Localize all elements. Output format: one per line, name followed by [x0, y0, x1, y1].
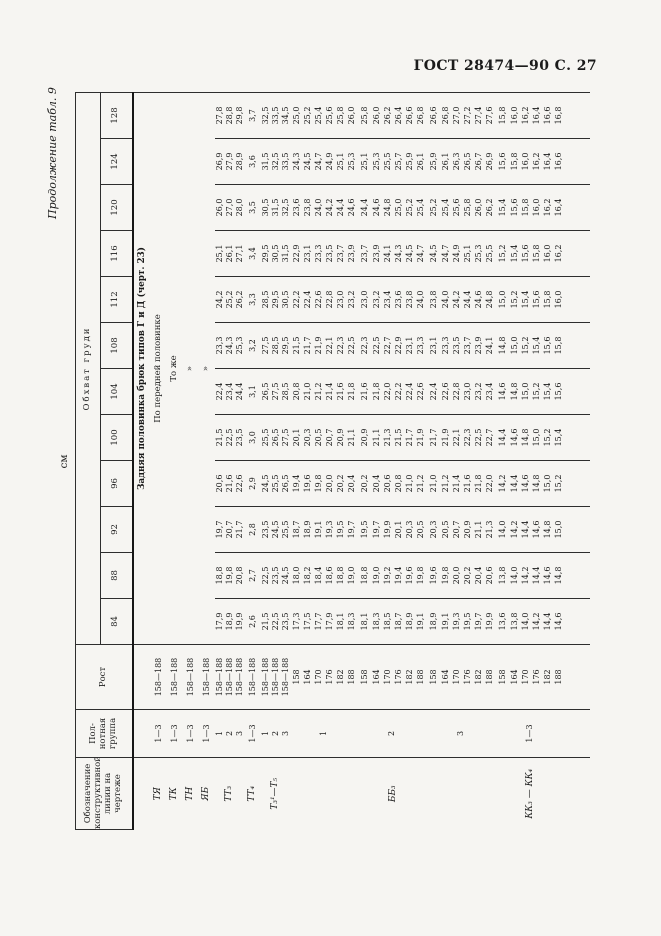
table-cell: 158: [291, 645, 303, 710]
value-cell: 14,4: [521, 507, 532, 553]
value-cell: 21,3: [383, 415, 394, 461]
value-cell: 26,0: [347, 93, 358, 139]
value-cell: 14,2: [532, 599, 543, 645]
value-cell: 25,5: [383, 139, 394, 185]
header-size-108: 108: [101, 323, 133, 369]
value-cell: 19,4: [291, 461, 303, 507]
value-cell: 14,4: [496, 415, 510, 461]
value-cell: 22,0: [485, 461, 496, 507]
value-cell: 33,5: [281, 139, 291, 185]
value-cell: 18,8: [215, 553, 225, 599]
header-height: Рост: [76, 645, 133, 710]
table-cell: [565, 553, 590, 599]
value-cell: 21,6: [336, 369, 347, 415]
value-cell: 23,2: [474, 369, 485, 415]
value-cell: 26,9: [215, 139, 225, 185]
designation-cell: КК₃ — КК₄: [496, 758, 565, 830]
table-cell: 158—188: [215, 645, 225, 710]
value-cell: 25,9: [427, 139, 441, 185]
table-cell: 3: [235, 710, 245, 758]
table-cell: 164: [510, 645, 521, 710]
table-cell: 3: [281, 710, 291, 758]
value-cell: 22,6: [314, 277, 325, 323]
value-cell: 26,1: [225, 231, 235, 277]
value-cell: 22,6: [441, 369, 452, 415]
table-cell: 2: [358, 710, 427, 758]
value-cell: 20,2: [336, 461, 347, 507]
value-cell: 22,3: [463, 415, 474, 461]
table-cell: 158—188: [151, 645, 167, 710]
table-cell: »: [199, 93, 215, 645]
table-row: 315818,919,620,321,021,722,423,123,824,5…: [427, 93, 441, 830]
value-cell: 32,5: [271, 139, 281, 185]
value-cell: 27,2: [463, 93, 474, 139]
header-fullness-group: Пол-нотная группа: [76, 710, 133, 758]
table-row: 3158—18823,524,525,526,527,528,529,530,5…: [281, 93, 291, 830]
table-cell: [565, 758, 590, 830]
value-cell: 21,3: [485, 507, 496, 553]
value-cell: 16,4: [543, 139, 554, 185]
value-cell: 25,2: [405, 185, 416, 231]
table-row: 2158—18818,919,820,721,622,523,424,325,2…: [225, 93, 235, 830]
value-cell: 15,4: [521, 277, 532, 323]
table-cell: 170: [452, 645, 463, 710]
value-cell: 26,7: [474, 139, 485, 185]
value-cell: 26,2: [485, 185, 496, 231]
value-cell: 18,7: [291, 507, 303, 553]
value-cell: 23,2: [372, 277, 383, 323]
value-cell: 14,4: [510, 461, 521, 507]
value-cell: 20,4: [347, 461, 358, 507]
value-cell: 22,4: [405, 369, 416, 415]
table-cell: 158—188: [167, 645, 183, 710]
value-cell: 25,1: [336, 139, 347, 185]
value-cell: 24,7: [441, 231, 452, 277]
value-cell: 24,6: [347, 185, 358, 231]
value-cell: 17,9: [325, 599, 336, 645]
value-cell: 25,4: [314, 93, 325, 139]
value-cell: 19,5: [336, 507, 347, 553]
value-cell: 19,5: [358, 507, 372, 553]
value-cell: 24,7: [314, 139, 325, 185]
value-cell: 24,5: [427, 231, 441, 277]
value-cell: 19,9: [485, 599, 496, 645]
value-cell: 20,0: [452, 553, 463, 599]
table-cell: 176: [394, 645, 405, 710]
header-size-100: 100: [101, 415, 133, 461]
value-cell: 25,6: [325, 93, 336, 139]
value-cell: 16,0: [543, 231, 554, 277]
value-cell: 19,4: [394, 553, 405, 599]
value-cell: 24,8: [383, 185, 394, 231]
value-cell: 26,9: [485, 139, 496, 185]
value-cell: 14,8: [543, 507, 554, 553]
value-cell: 20,4: [372, 461, 383, 507]
value-cell: 30,5: [271, 231, 281, 277]
value-cell: 15,2: [521, 323, 532, 369]
value-cell: 3,7: [245, 93, 261, 139]
value-cell: 16,0: [554, 277, 565, 323]
value-cell: 3,2: [245, 323, 261, 369]
value-cell: 25,8: [336, 93, 347, 139]
table-cell: [565, 323, 590, 369]
garment-measurement-table: Обозначение конструктивной линии на черт…: [75, 92, 590, 830]
value-cell: 20,1: [291, 415, 303, 461]
value-cell: 20,1: [394, 507, 405, 553]
value-cell: 17,9: [215, 599, 225, 645]
value-cell: 27,6: [485, 93, 496, 139]
value-cell: 23,7: [358, 231, 372, 277]
value-cell: 3,0: [245, 415, 261, 461]
value-cell: 17,7: [314, 599, 325, 645]
table-cell: 182: [336, 645, 347, 710]
table-cell: 1—3: [199, 710, 215, 758]
value-cell: 19,8: [441, 553, 452, 599]
value-cell: 34,5: [281, 93, 291, 139]
value-cell: 26,0: [372, 93, 383, 139]
value-cell: 18,9: [303, 507, 314, 553]
value-cell: 32,5: [261, 93, 271, 139]
value-cell: 27,0: [452, 93, 463, 139]
value-cell: 22,8: [325, 277, 336, 323]
header-size-84: 84: [101, 599, 133, 645]
value-cell: 20,2: [463, 553, 474, 599]
value-cell: 16,0: [521, 139, 532, 185]
value-cell: 21,6: [358, 369, 372, 415]
value-cell: 23,5: [271, 553, 281, 599]
value-cell: 26,4: [394, 93, 405, 139]
value-cell: 27,5: [281, 415, 291, 461]
value-cell: 23,6: [394, 277, 405, 323]
table-cell: [565, 185, 590, 231]
value-cell: 20,2: [358, 461, 372, 507]
value-cell: 22,5: [261, 553, 271, 599]
table-cell: 1—3: [183, 710, 199, 758]
value-cell: 20,8: [291, 369, 303, 415]
table-cell: 1—3: [167, 710, 183, 758]
value-cell: 14,6: [510, 415, 521, 461]
value-cell: 26,5: [281, 461, 291, 507]
table-cell: 158: [496, 645, 510, 710]
value-cell: 28,5: [281, 369, 291, 415]
value-cell: 14,4: [543, 599, 554, 645]
table-cell: 158—188: [261, 645, 271, 710]
table-body: Задняя половинка брюк типов Г и Д (черт.…: [133, 93, 590, 830]
value-cell: 25,1: [358, 139, 372, 185]
table-cell: 176: [325, 645, 336, 710]
value-cell: 27,5: [271, 369, 281, 415]
value-cell: 25,5: [271, 461, 281, 507]
table-cell: 170: [521, 645, 532, 710]
value-cell: 19,8: [314, 461, 325, 507]
value-cell: 14,0: [510, 553, 521, 599]
table-cell: 158—188: [183, 645, 199, 710]
value-cell: 23,6: [291, 185, 303, 231]
value-cell: 2,8: [245, 507, 261, 553]
value-cell: 21,2: [314, 369, 325, 415]
value-cell: 18,9: [427, 599, 441, 645]
value-cell: 22,4: [215, 369, 225, 415]
value-cell: 15,2: [532, 369, 543, 415]
value-cell: 15,6: [496, 139, 510, 185]
value-cell: 20,3: [427, 507, 441, 553]
value-cell: 31,5: [281, 231, 291, 277]
table-cell: 158—188: [245, 645, 261, 710]
value-cell: 29,5: [261, 231, 271, 277]
value-cell: 25,3: [372, 139, 383, 185]
table-cell: 158: [358, 645, 372, 710]
table-cell: 2: [225, 710, 235, 758]
value-cell: 22,5: [347, 323, 358, 369]
table-cell: 2: [271, 710, 281, 758]
value-cell: 16,4: [554, 185, 565, 231]
value-cell: 3,1: [245, 369, 261, 415]
value-cell: 16,6: [543, 93, 554, 139]
value-cell: 31,5: [261, 139, 271, 185]
value-cell: 25,7: [394, 139, 405, 185]
value-cell: 21,7: [303, 323, 314, 369]
value-cell: 21,4: [452, 461, 463, 507]
value-cell: 25,2: [303, 93, 314, 139]
value-cell: 15,2: [496, 231, 510, 277]
header-size-128: 128: [101, 93, 133, 139]
rotated-measurement-table: Обозначение конструктивной линии на черт…: [75, 93, 590, 830]
value-cell: 25,4: [441, 185, 452, 231]
value-cell: 23,3: [441, 323, 452, 369]
value-cell: 20,6: [215, 461, 225, 507]
header-size-88: 88: [101, 553, 133, 599]
value-cell: 28,8: [225, 93, 235, 139]
value-cell: 22,2: [394, 369, 405, 415]
value-cell: 16,8: [554, 93, 565, 139]
value-cell: 20,5: [314, 415, 325, 461]
table-cell: [565, 507, 590, 553]
table-cell: [565, 599, 590, 645]
table-cell: [565, 461, 590, 507]
value-cell: 23,5: [281, 599, 291, 645]
value-cell: 18,4: [314, 553, 325, 599]
value-cell: 28,5: [261, 277, 271, 323]
value-cell: 20,7: [325, 415, 336, 461]
table-row: [565, 93, 590, 830]
value-cell: 31,5: [271, 185, 281, 231]
value-cell: 19,9: [235, 599, 245, 645]
header-chest-girth: Обхват груди: [76, 93, 101, 645]
designation-cell: ББ₃: [291, 758, 496, 830]
table-cell: [565, 139, 590, 185]
value-cell: 24,1: [485, 323, 496, 369]
value-cell: 21,8: [474, 461, 485, 507]
designation-cell: Т₃¹—Т₅: [261, 758, 291, 830]
value-cell: 15,0: [496, 277, 510, 323]
value-cell: 18,9: [405, 599, 416, 645]
table-cell: [133, 758, 151, 830]
value-cell: 15,8: [521, 185, 532, 231]
value-cell: 15,6: [521, 231, 532, 277]
value-cell: 23,4: [225, 369, 235, 415]
value-cell: 25,9: [405, 139, 416, 185]
value-cell: 19,5: [463, 599, 474, 645]
value-cell: 21,9: [416, 415, 427, 461]
table-row: ЯБ1—3158—188»: [199, 93, 215, 830]
designation-cell: ТТ₃: [215, 758, 245, 830]
value-cell: 19,3: [325, 507, 336, 553]
value-cell: 23,5: [452, 323, 463, 369]
value-cell: 23,0: [358, 277, 372, 323]
value-cell: 24,3: [394, 231, 405, 277]
value-cell: 24,0: [416, 277, 427, 323]
value-cell: 18,6: [325, 553, 336, 599]
value-cell: 23,4: [485, 369, 496, 415]
value-cell: 20,0: [325, 461, 336, 507]
value-cell: 19,7: [215, 507, 225, 553]
value-cell: 23,3: [215, 323, 225, 369]
value-cell: 13,8: [496, 553, 510, 599]
value-cell: 25,8: [358, 93, 372, 139]
value-cell: 30,5: [261, 185, 271, 231]
value-cell: 15,0: [543, 461, 554, 507]
value-cell: 3,5: [245, 185, 261, 231]
value-cell: 19,0: [347, 553, 358, 599]
value-cell: 24,4: [358, 185, 372, 231]
unit-label-cm: см: [58, 93, 70, 830]
value-cell: 24,7: [416, 231, 427, 277]
table-cell: 182: [474, 645, 485, 710]
table-row: Задняя половинка брюк типов Г и Д (черт.…: [133, 93, 151, 830]
value-cell: 27,9: [225, 139, 235, 185]
value-cell: 20,8: [394, 461, 405, 507]
table-cell: 1: [261, 710, 271, 758]
value-cell: 14,6: [521, 461, 532, 507]
value-cell: 20,3: [303, 415, 314, 461]
table-cell: 158—188: [281, 645, 291, 710]
table-cell: [565, 231, 590, 277]
value-cell: 23,5: [261, 507, 271, 553]
scanned-gost-page: { "page": { "gost_header": "ГОСТ 28474—9…: [0, 0, 661, 936]
value-cell: 20,5: [441, 507, 452, 553]
value-cell: 22,1: [325, 323, 336, 369]
value-cell: 25,1: [215, 231, 225, 277]
value-cell: 25,2: [427, 185, 441, 231]
value-cell: 24,6: [372, 185, 383, 231]
value-cell: 21,2: [441, 461, 452, 507]
value-cell: 3,4: [245, 231, 261, 277]
value-cell: 15,4: [543, 369, 554, 415]
table-row: ББ₃115817,318,018,719,420,120,821,522,22…: [291, 93, 303, 830]
table-cell: [565, 277, 590, 323]
value-cell: 23,0: [336, 277, 347, 323]
value-cell: 13,8: [510, 599, 521, 645]
value-cell: 19,8: [416, 553, 427, 599]
table-cell: 188: [485, 645, 496, 710]
value-cell: 17,3: [291, 599, 303, 645]
value-cell: 2,9: [245, 461, 261, 507]
value-cell: 26,5: [271, 415, 281, 461]
value-cell: 15,2: [543, 415, 554, 461]
value-cell: 15,8: [510, 139, 521, 185]
table-cell: 158—188: [235, 645, 245, 710]
value-cell: 23,7: [336, 231, 347, 277]
table-cell: [133, 645, 151, 710]
value-cell: 23,8: [405, 277, 416, 323]
value-cell: 15,8: [532, 231, 543, 277]
value-cell: 22,9: [394, 323, 405, 369]
value-cell: 27,1: [235, 231, 245, 277]
value-cell: 25,8: [463, 185, 474, 231]
value-cell: 25,6: [452, 185, 463, 231]
value-cell: 19,0: [372, 553, 383, 599]
value-cell: 20,8: [235, 553, 245, 599]
table-row: 3158—18819,920,821,722,623,524,425,326,2…: [235, 93, 245, 830]
value-cell: 30,5: [281, 277, 291, 323]
value-cell: 14,6: [554, 599, 565, 645]
value-cell: 19,7: [347, 507, 358, 553]
value-cell: 20,9: [358, 415, 372, 461]
value-cell: 15,4: [510, 231, 521, 277]
value-cell: 24,0: [314, 185, 325, 231]
value-cell: 15,6: [532, 277, 543, 323]
value-cell: 29,5: [281, 323, 291, 369]
value-cell: 21,5: [394, 415, 405, 461]
value-cell: 15,6: [510, 185, 521, 231]
value-cell: 27,4: [474, 93, 485, 139]
value-cell: 18,1: [358, 599, 372, 645]
value-cell: 15,8: [554, 323, 565, 369]
value-cell: 21,1: [372, 415, 383, 461]
value-cell: 23,8: [427, 277, 441, 323]
value-cell: 2,6: [245, 599, 261, 645]
value-cell: 19,1: [441, 599, 452, 645]
value-cell: 15,0: [521, 369, 532, 415]
table-cell: 158: [427, 645, 441, 710]
value-cell: 14,6: [496, 369, 510, 415]
value-cell: 21,9: [441, 415, 452, 461]
value-cell: 22,8: [452, 369, 463, 415]
value-cell: 23,9: [347, 231, 358, 277]
value-cell: 24,5: [281, 553, 291, 599]
value-cell: 15,4: [554, 415, 565, 461]
value-cell: 23,3: [416, 323, 427, 369]
table-cell: [565, 93, 590, 139]
value-cell: 21,1: [474, 507, 485, 553]
table-cell: [133, 710, 151, 758]
value-cell: 23,1: [303, 231, 314, 277]
value-cell: 16,6: [554, 139, 565, 185]
value-cell: 24,2: [452, 277, 463, 323]
value-cell: 22,9: [291, 231, 303, 277]
value-cell: 26,0: [215, 185, 225, 231]
value-cell: 14,2: [510, 507, 521, 553]
value-cell: 14,4: [532, 553, 543, 599]
value-cell: 15,6: [543, 323, 554, 369]
value-cell: 18,8: [358, 553, 372, 599]
value-cell: 13,6: [496, 599, 510, 645]
value-cell: 15,4: [496, 185, 510, 231]
value-cell: 14,6: [532, 507, 543, 553]
value-cell: 14,8: [521, 415, 532, 461]
value-cell: 15,8: [496, 93, 510, 139]
table-cell: 164: [303, 645, 314, 710]
page-header-gost-number: ГОСТ 28474—90 С. 27: [414, 58, 597, 74]
value-cell: 21,5: [291, 323, 303, 369]
value-cell: 22,4: [427, 369, 441, 415]
value-cell: 17,5: [303, 599, 314, 645]
table-row: ТТ₃1158—18817,918,819,720,621,522,423,32…: [215, 93, 225, 830]
value-cell: 26,2: [383, 93, 394, 139]
table-cell: 1—3: [496, 710, 565, 758]
value-cell: 23,4: [383, 277, 394, 323]
value-cell: 22,7: [485, 415, 496, 461]
